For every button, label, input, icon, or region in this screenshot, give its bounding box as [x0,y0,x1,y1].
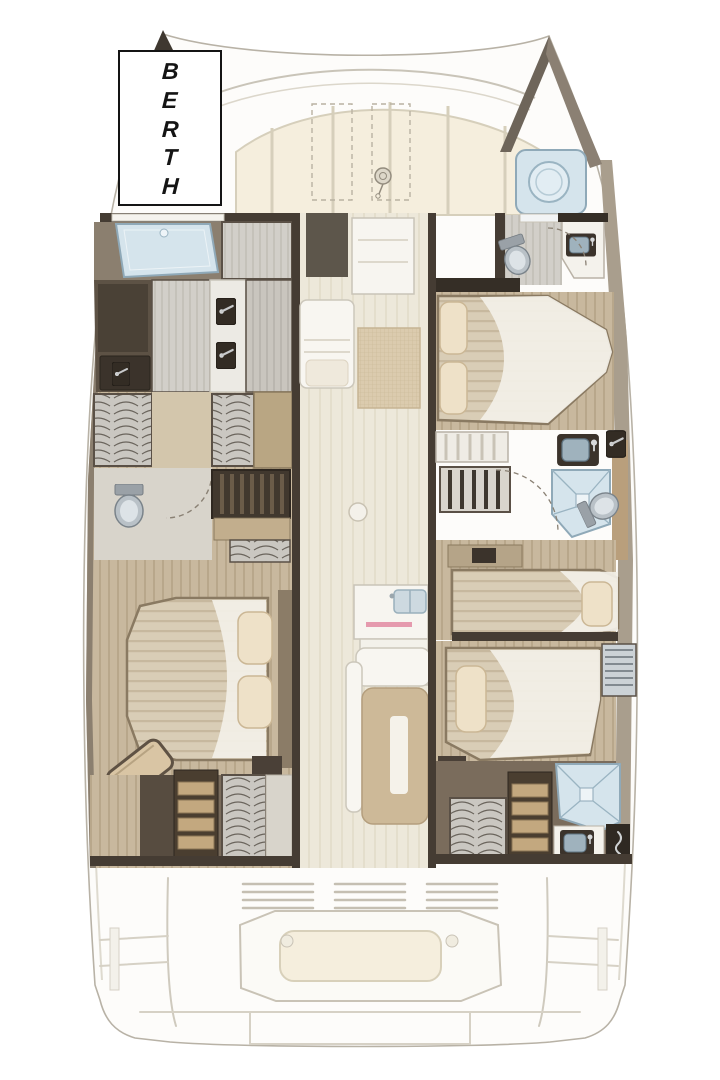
forepeak-locker [222,222,292,279]
catamaran-floorplan-page: BERTH [0,0,720,1080]
cockpit-bench-icon [240,911,501,1001]
handle-icon [606,431,626,458]
steps-icon [508,772,552,860]
double-bed-icon [127,598,272,760]
berth-letter: E [162,86,179,115]
pillow [440,362,467,414]
double-bed-icon [446,648,600,760]
hanging-locker-icon [212,394,254,466]
salon-unit [352,218,414,294]
dinette [346,648,430,824]
pillow [238,676,272,728]
pillow [440,302,467,354]
port-forward-cabinets [94,280,292,392]
pillow [456,666,486,732]
helm-seat [300,300,354,388]
starboard-aft-utility [436,761,632,864]
sink-icon [557,434,599,466]
floor-mat [358,328,420,408]
salon-cabinet-dark [306,213,348,277]
berth-letter: T [162,143,178,172]
hanging-locker-icon [222,775,266,858]
starboard-aft-cabin-a [436,540,618,641]
port-inner-wall [292,213,300,868]
hanging-locker-icon [94,394,152,466]
port-aft-steps-row [90,770,292,866]
handle-icon [216,342,236,369]
galley-accent-strip [366,622,412,627]
hanging-locker-icon [602,644,636,696]
berth-letter: R [161,115,179,144]
table-leaf [390,716,408,794]
port-forepeak-berth [94,222,292,280]
handle-icon [216,298,236,325]
hanging-locker-icon [450,798,506,858]
single-bed-icon [452,570,618,634]
port-hull [86,213,300,868]
starboard-inner-wall [428,213,436,868]
port-head [94,468,290,562]
sink-icon [566,234,596,257]
pillow [582,582,612,626]
handle-icon [112,362,130,386]
dinette-bench [346,662,362,812]
center-salon [300,213,436,868]
sink-icon [560,830,594,856]
steps-icon [174,770,218,860]
galley-sink-icon [390,590,427,613]
berth-letter: B [161,57,179,86]
floorplan-drawing [0,0,720,1080]
toilet-icon [115,484,143,527]
handle-icon [472,548,496,563]
port-locker-row [94,392,292,468]
hanging-locker-icon [230,540,290,562]
pillow [238,612,272,664]
berth-label-box: BERTH [118,50,222,206]
floor-hatch-ring [349,503,367,521]
berth-letter: H [161,172,179,201]
